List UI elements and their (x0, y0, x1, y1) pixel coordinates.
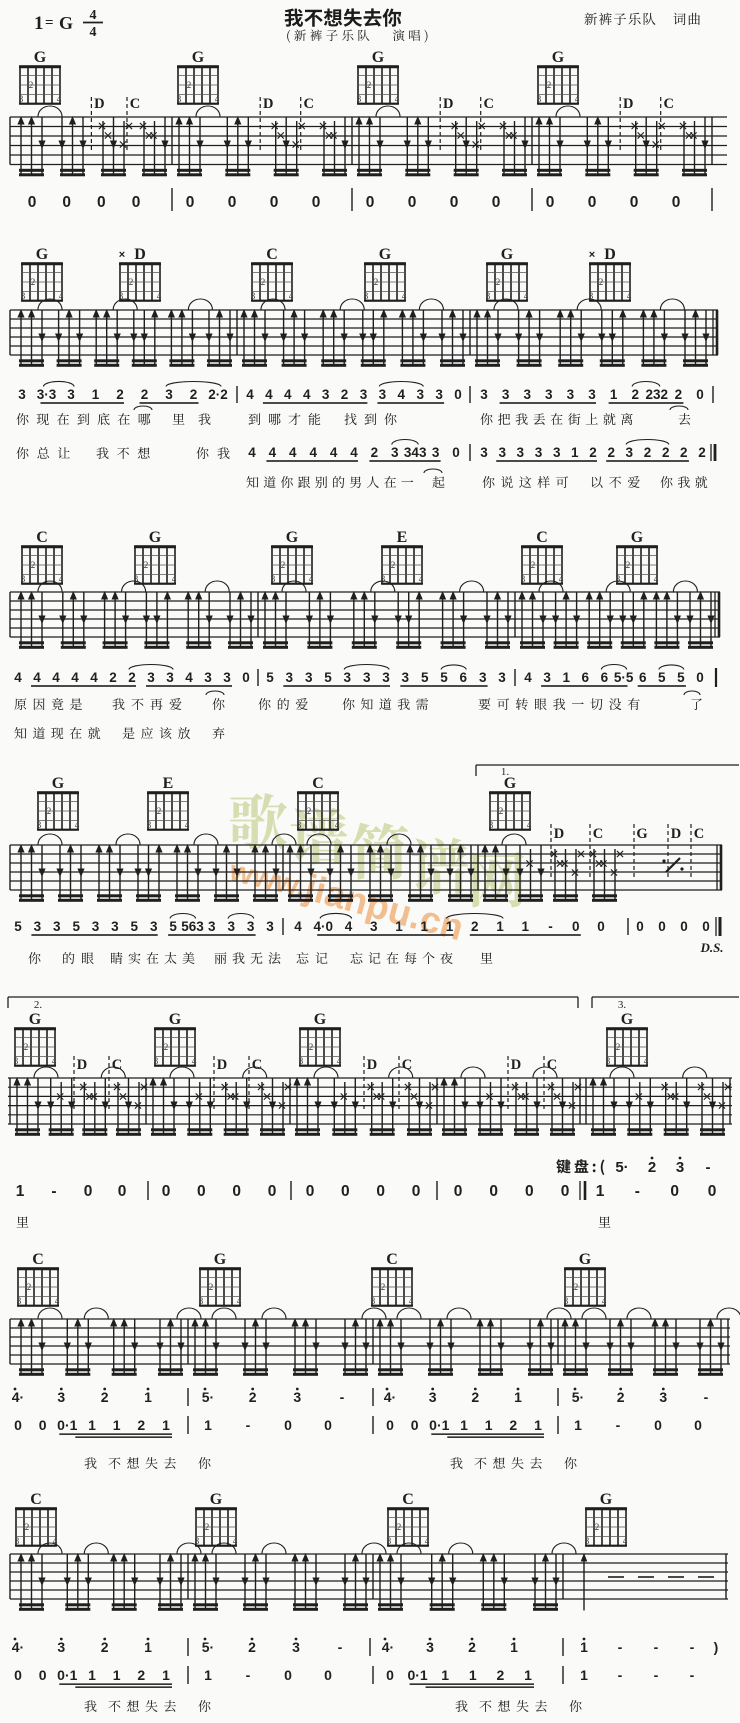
svg-text:3: 3 (480, 387, 488, 402)
svg-text:4: 4 (192, 1056, 197, 1066)
svg-text:2: 2 (137, 1417, 145, 1433)
svg-text:232: 232 (646, 387, 669, 402)
svg-text:-: - (635, 1183, 640, 1200)
svg-text:G: G (552, 49, 565, 66)
svg-text:C: C (483, 96, 493, 112)
svg-text:2: 2 (341, 387, 349, 402)
svg-text:2: 2 (109, 670, 117, 685)
svg-text:3: 3 (402, 670, 410, 685)
svg-text:D: D (263, 96, 273, 112)
svg-text:0: 0 (324, 1417, 332, 1433)
svg-text:3: 3 (479, 670, 487, 685)
svg-text:1: 1 (92, 387, 100, 402)
svg-text:4: 4 (289, 445, 297, 460)
svg-text:4·: 4· (384, 1389, 396, 1405)
svg-text:2: 2 (281, 560, 286, 570)
svg-text:G: G (36, 246, 49, 263)
svg-text:1: 1 (34, 13, 44, 34)
svg-text:3: 3 (177, 94, 182, 104)
svg-text:2: 2 (128, 670, 136, 685)
svg-text:C: C (30, 1491, 42, 1508)
svg-text:4: 4 (269, 445, 277, 460)
svg-text:3: 3 (426, 1639, 434, 1655)
svg-text:2: 2 (25, 1522, 30, 1532)
svg-text:2: 2 (675, 387, 683, 402)
svg-text:3: 3 (271, 574, 276, 584)
svg-text:2: 2 (205, 1522, 210, 1532)
svg-text:D: D (443, 96, 453, 112)
svg-text:4: 4 (185, 670, 193, 685)
svg-text:6: 6 (639, 670, 647, 685)
svg-text:5: 5 (324, 670, 332, 685)
svg-text:5: 5 (440, 670, 448, 685)
svg-text:2: 2 (209, 1282, 214, 1292)
svg-text:4: 4 (527, 820, 532, 830)
svg-text:3: 3 (498, 670, 506, 685)
svg-text:0: 0 (492, 194, 501, 211)
svg-text:0: 0 (630, 194, 639, 211)
svg-text:4: 4 (90, 8, 97, 23)
svg-text:4·: 4· (382, 1639, 394, 1655)
svg-text:2: 2 (468, 1639, 476, 1655)
svg-text:C: C (694, 826, 704, 842)
svg-text:0: 0 (546, 194, 555, 211)
svg-text:0: 0 (597, 919, 605, 934)
svg-text:G: G (149, 529, 162, 546)
svg-text:2: 2 (249, 1389, 257, 1405)
svg-text:2: 2 (662, 445, 670, 460)
svg-text:2: 2 (371, 445, 379, 460)
svg-text:3: 3 (15, 1536, 20, 1546)
svg-text:1: 1 (16, 1183, 25, 1200)
svg-text:D: D (604, 246, 616, 263)
svg-text:1: 1 (395, 919, 403, 934)
svg-text:3: 3 (537, 94, 542, 104)
svg-text:6: 6 (582, 670, 590, 685)
svg-text:4: 4 (350, 445, 358, 460)
svg-text:2·2: 2·2 (208, 387, 228, 402)
svg-text:1: 1 (496, 919, 504, 934)
svg-text:3: 3 (523, 387, 531, 402)
svg-text:4: 4 (398, 387, 406, 402)
svg-text:3: 3 (371, 1296, 376, 1306)
svg-text:0: 0 (658, 919, 666, 934)
svg-text:4: 4 (55, 1296, 60, 1306)
svg-text:-: - (340, 1389, 345, 1405)
svg-text:2: 2 (248, 1639, 256, 1655)
svg-text:0: 0 (489, 1183, 498, 1200)
svg-text:0: 0 (284, 1417, 292, 1433)
svg-text:-: - (654, 1639, 659, 1655)
svg-text:3: 3 (616, 574, 621, 584)
svg-text:E: E (163, 775, 174, 792)
svg-text:0: 0 (696, 670, 704, 685)
svg-text:2: 2 (616, 1042, 621, 1052)
svg-text:G: G (579, 1251, 592, 1268)
svg-text:4: 4 (215, 94, 220, 104)
svg-text:4: 4 (284, 387, 292, 402)
svg-text:4: 4 (248, 445, 256, 460)
svg-text:4: 4 (172, 574, 177, 584)
svg-text:3.: 3. (618, 999, 627, 1011)
svg-text:4: 4 (627, 291, 632, 301)
svg-text:5·: 5· (572, 1389, 584, 1405)
svg-text:0: 0 (324, 1667, 332, 1683)
svg-text:3: 3 (57, 1639, 65, 1655)
svg-text:0: 0 (341, 1183, 350, 1200)
svg-text:4: 4 (71, 670, 79, 685)
svg-text:1: 1 (113, 1417, 121, 1433)
svg-text:3: 3 (147, 820, 152, 830)
svg-text:3: 3 (111, 919, 119, 934)
svg-text:3: 3 (266, 919, 274, 934)
svg-text:1: 1 (514, 1389, 522, 1405)
svg-text:C: C (36, 529, 48, 546)
svg-text:1: 1 (571, 445, 579, 460)
svg-text:0·1: 0·1 (407, 1667, 427, 1683)
svg-text:3: 3 (387, 1536, 392, 1546)
svg-text:4: 4 (237, 1296, 242, 1306)
svg-text:4: 4 (409, 1296, 414, 1306)
svg-text:4·: 4· (12, 1639, 24, 1655)
svg-text:2: 2 (164, 1042, 169, 1052)
svg-text:-: - (616, 1417, 621, 1433)
svg-text:2: 2 (157, 806, 162, 816)
svg-text:5: 5 (266, 670, 274, 685)
svg-text:C: C (32, 1251, 44, 1268)
svg-text:3: 3 (432, 445, 440, 460)
svg-text:3: 3 (17, 1296, 22, 1306)
svg-text:G: G (379, 246, 392, 263)
svg-text:4: 4 (52, 1056, 57, 1066)
svg-text:2: 2 (397, 1522, 402, 1532)
svg-text:4: 4 (59, 574, 64, 584)
svg-text:3: 3 (92, 919, 100, 934)
svg-text:G: G (600, 1491, 613, 1508)
svg-text:3: 3 (53, 919, 61, 934)
svg-text:3: 3 (626, 445, 634, 460)
svg-text:0: 0 (408, 194, 417, 211)
svg-text:3: 3 (357, 94, 362, 104)
svg-text:5·5: 5·5 (614, 670, 634, 685)
svg-text:1: 1 (88, 1667, 96, 1683)
svg-text:0: 0 (450, 194, 459, 211)
svg-text:4: 4 (157, 291, 162, 301)
svg-text:D: D (217, 1057, 227, 1073)
svg-text:2.: 2. (34, 999, 43, 1011)
svg-text:1: 1 (420, 919, 428, 934)
svg-text:0: 0 (454, 1183, 463, 1200)
svg-text:D: D (94, 96, 104, 112)
svg-text:3: 3 (21, 574, 26, 584)
svg-text:1: 1 (204, 1417, 212, 1433)
svg-text:4: 4 (335, 820, 340, 830)
svg-text:4: 4 (644, 1056, 649, 1066)
svg-text:3: 3 (223, 670, 231, 685)
svg-text:4: 4 (575, 94, 580, 104)
svg-text:3: 3 (567, 387, 575, 402)
svg-text:4: 4 (233, 1536, 238, 1546)
svg-text:0: 0 (636, 919, 644, 934)
svg-text:0: 0 (284, 1667, 292, 1683)
svg-text:-: - (690, 1667, 695, 1683)
svg-text:3: 3 (659, 1389, 667, 1405)
svg-text:0: 0 (588, 194, 597, 211)
svg-text:3: 3 (486, 291, 491, 301)
svg-text:G: G (29, 1011, 42, 1028)
svg-text:-: - (246, 1417, 251, 1433)
svg-text:4: 4 (402, 291, 407, 301)
svg-text:5·: 5· (202, 1639, 214, 1655)
svg-text:G: G (192, 49, 205, 66)
svg-text:0: 0 (411, 1417, 419, 1433)
svg-text:0: 0 (97, 194, 106, 211)
svg-text:4: 4 (303, 387, 311, 402)
svg-text:5: 5 (658, 670, 666, 685)
svg-text:3: 3 (502, 387, 510, 402)
svg-text:0: 0 (118, 1183, 127, 1200)
svg-text:3: 3 (299, 1056, 304, 1066)
svg-text:2: 2 (137, 1667, 145, 1683)
svg-text:0: 0 (312, 194, 321, 211)
svg-text:3: 3 (57, 1389, 65, 1405)
svg-text:G: G (286, 529, 299, 546)
svg-text:0: 0 (386, 1667, 394, 1683)
svg-text:2: 2 (187, 80, 192, 90)
svg-text:2: 2 (129, 277, 134, 287)
svg-text:6: 6 (460, 670, 468, 685)
svg-text:1: 1 (534, 1417, 542, 1433)
svg-text:2: 2 (309, 1042, 314, 1052)
svg-text:4: 4 (425, 1536, 430, 1546)
svg-text:4: 4 (524, 670, 532, 685)
svg-text:3: 3 (147, 670, 155, 685)
svg-text:2: 2 (471, 1389, 479, 1405)
svg-text:4: 4 (289, 291, 294, 301)
svg-text:C: C (266, 246, 278, 263)
svg-text:-: - (338, 1639, 343, 1655)
svg-text:G: G (34, 49, 47, 66)
svg-text:3: 3 (305, 670, 313, 685)
svg-text:4: 4 (419, 574, 424, 584)
svg-text:D: D (134, 246, 146, 263)
svg-text:0: 0 (654, 1417, 662, 1433)
svg-text:0: 0 (39, 1667, 47, 1683)
svg-text:C: C (593, 826, 603, 842)
svg-text:×: × (589, 249, 595, 261)
svg-text:1: 1 (441, 1667, 449, 1683)
svg-text:3: 3 (382, 670, 390, 685)
svg-text:1: 1 (510, 1639, 518, 1655)
svg-text:C: C (386, 1251, 398, 1268)
svg-text:3: 3 (545, 387, 553, 402)
svg-text:2: 2 (101, 1639, 109, 1655)
svg-text:4: 4 (309, 574, 314, 584)
svg-text:-: - (706, 1159, 711, 1176)
svg-text:1: 1 (524, 1667, 532, 1683)
svg-text:5: 5 (421, 670, 429, 685)
svg-text:563: 563 (181, 919, 204, 934)
svg-text:3: 3 (543, 670, 551, 685)
svg-text:3: 3 (247, 919, 255, 934)
svg-text:0: 0 (572, 919, 580, 934)
svg-text:3: 3 (21, 291, 26, 301)
svg-text:2: 2 (471, 919, 479, 934)
svg-text:4·: 4· (12, 1389, 24, 1405)
svg-text:3: 3 (498, 445, 506, 460)
svg-text:0: 0 (696, 387, 704, 402)
svg-text:4: 4 (246, 387, 254, 402)
svg-text:2: 2 (31, 277, 36, 287)
svg-text:0: 0 (672, 194, 681, 211)
svg-text:1: 1 (204, 1667, 212, 1683)
svg-text:4: 4 (90, 25, 97, 40)
svg-text:0: 0 (708, 1183, 717, 1200)
svg-text:3: 3 (517, 445, 525, 460)
svg-text:4: 4 (265, 387, 273, 402)
svg-text:5·: 5· (615, 1159, 628, 1176)
svg-text:3: 3 (204, 670, 212, 685)
svg-text:3: 3 (165, 387, 173, 402)
svg-text:3: 3 (553, 445, 561, 460)
svg-text:1: 1 (162, 1417, 170, 1433)
svg-text:3: 3 (18, 387, 26, 402)
svg-text:3: 3 (154, 1056, 159, 1066)
svg-text:-: - (548, 919, 553, 934)
svg-text:4: 4 (59, 291, 64, 301)
svg-text:2: 2 (599, 277, 604, 287)
svg-text:D: D (367, 1057, 377, 1073)
svg-text:4: 4 (294, 919, 302, 934)
svg-text:4: 4 (559, 574, 564, 584)
svg-text:G: G (314, 1011, 327, 1028)
svg-text:0·1: 0·1 (57, 1667, 77, 1683)
svg-text:1: 1 (446, 919, 454, 934)
svg-text:3: 3 (585, 1536, 590, 1546)
svg-text:3: 3 (521, 574, 526, 584)
svg-text:2: 2 (144, 560, 149, 570)
svg-text:3: 3 (435, 387, 443, 402)
svg-text:4·0: 4·0 (313, 919, 333, 934)
svg-text:0: 0 (268, 1183, 277, 1200)
svg-text:2: 2 (116, 387, 124, 402)
svg-text:5: 5 (131, 919, 139, 934)
svg-text:3: 3 (416, 387, 424, 402)
svg-text:3: 3 (208, 919, 216, 934)
svg-text:0: 0 (525, 1183, 534, 1200)
svg-text:0: 0 (561, 1183, 570, 1200)
svg-text:0: 0 (84, 1183, 93, 1200)
svg-text:2: 2 (509, 1417, 517, 1433)
svg-text:G: G (52, 775, 65, 792)
svg-text:0: 0 (386, 1417, 394, 1433)
svg-text:2: 2 (644, 445, 652, 460)
svg-text:4: 4 (654, 574, 659, 584)
svg-text:3: 3 (134, 574, 139, 584)
svg-text:1: 1 (144, 1389, 152, 1405)
svg-text:2: 2 (261, 277, 266, 287)
svg-text:G: G (59, 13, 73, 33)
svg-text:1: 1 (596, 1183, 605, 1200)
svg-text:3: 3 (564, 1296, 569, 1306)
svg-text:0: 0 (186, 194, 195, 211)
svg-text:2: 2 (381, 1282, 386, 1292)
svg-text:): ) (714, 1639, 719, 1655)
svg-text:D: D (554, 826, 564, 842)
svg-text:2: 2 (595, 1522, 600, 1532)
svg-text:D: D (77, 1057, 87, 1073)
svg-text:G: G (636, 826, 647, 842)
svg-text:G: G (504, 775, 517, 792)
svg-text:4: 4 (330, 445, 338, 460)
svg-text:6: 6 (601, 670, 609, 685)
svg-text:0: 0 (14, 1417, 22, 1433)
svg-text:0: 0 (452, 445, 460, 460)
svg-text:3: 3 (360, 387, 368, 402)
svg-text:3: 3 (34, 919, 42, 934)
svg-text:0: 0 (14, 1667, 22, 1683)
svg-text:2: 2 (531, 560, 536, 570)
svg-text:1: 1 (485, 1417, 493, 1433)
svg-text:4: 4 (623, 1536, 628, 1546)
svg-text:C: C (402, 1491, 414, 1508)
svg-text:5: 5 (677, 670, 685, 685)
svg-text:0: 0 (228, 194, 237, 211)
svg-text:3: 3 (364, 291, 369, 301)
svg-text:2: 2 (496, 277, 501, 287)
svg-text:3: 3 (150, 919, 158, 934)
svg-text:3: 3 (606, 1056, 611, 1066)
svg-text:2: 2 (27, 1282, 32, 1292)
svg-text:4: 4 (309, 445, 317, 460)
svg-text:0: 0 (232, 1183, 241, 1200)
svg-text:4: 4 (57, 94, 62, 104)
svg-text:4: 4 (602, 1296, 607, 1306)
svg-text:C: C (663, 96, 673, 112)
svg-text:3: 3 (535, 445, 543, 460)
svg-text:0: 0 (680, 919, 688, 934)
svg-text:G: G (210, 1491, 223, 1508)
svg-text:-: - (618, 1639, 623, 1655)
svg-text:3: 3 (379, 387, 387, 402)
svg-text:4: 4 (75, 820, 80, 830)
svg-text:G: G (631, 529, 644, 546)
svg-text:3: 3 (251, 291, 256, 301)
svg-text:2: 2 (101, 1389, 109, 1405)
svg-text:4: 4 (337, 1056, 342, 1066)
svg-text:0: 0 (62, 194, 71, 211)
svg-text:2: 2 (31, 560, 36, 570)
svg-text:2: 2 (607, 445, 615, 460)
svg-text:D: D (671, 826, 681, 842)
svg-text:2: 2 (648, 1159, 656, 1176)
svg-text:2: 2 (589, 445, 597, 460)
svg-text:0: 0 (28, 194, 37, 211)
svg-text:0: 0 (132, 194, 141, 211)
svg-text:0: 0 (412, 1183, 421, 1200)
svg-text:2: 2 (374, 277, 379, 287)
svg-text:2: 2 (698, 445, 706, 460)
svg-text:3·3: 3·3 (37, 387, 57, 402)
svg-text:4: 4 (90, 670, 98, 685)
svg-text:2: 2 (499, 806, 504, 816)
svg-text:2: 2 (47, 806, 52, 816)
svg-text:C: C (130, 96, 140, 112)
svg-text:G: G (214, 1251, 227, 1268)
svg-text:=: = (45, 15, 54, 31)
svg-text:D: D (511, 1057, 521, 1073)
svg-text:1: 1 (521, 919, 529, 934)
